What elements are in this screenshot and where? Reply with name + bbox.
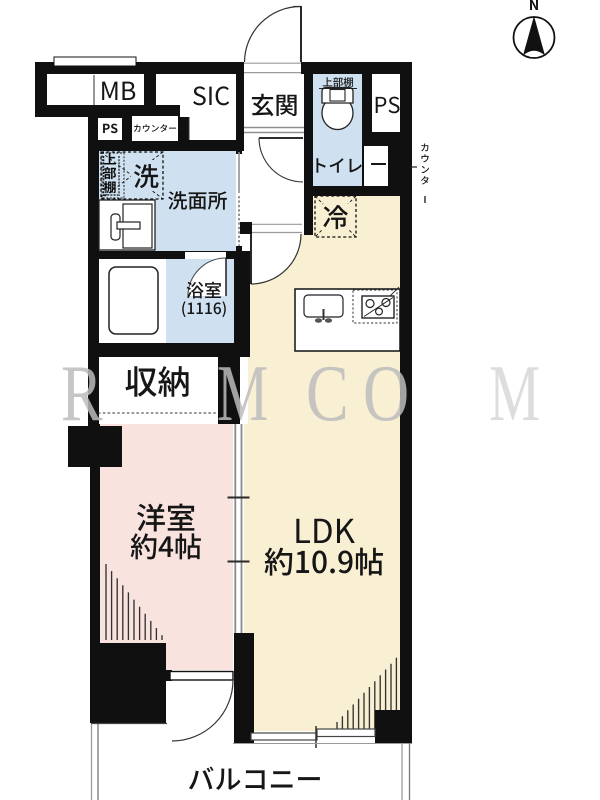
svg-text:M: M bbox=[217, 350, 268, 438]
svg-text:R: R bbox=[61, 349, 103, 438]
svg-text:M: M bbox=[489, 350, 540, 438]
svg-text:O: O bbox=[363, 348, 409, 437]
svg-text:C: C bbox=[306, 348, 349, 437]
